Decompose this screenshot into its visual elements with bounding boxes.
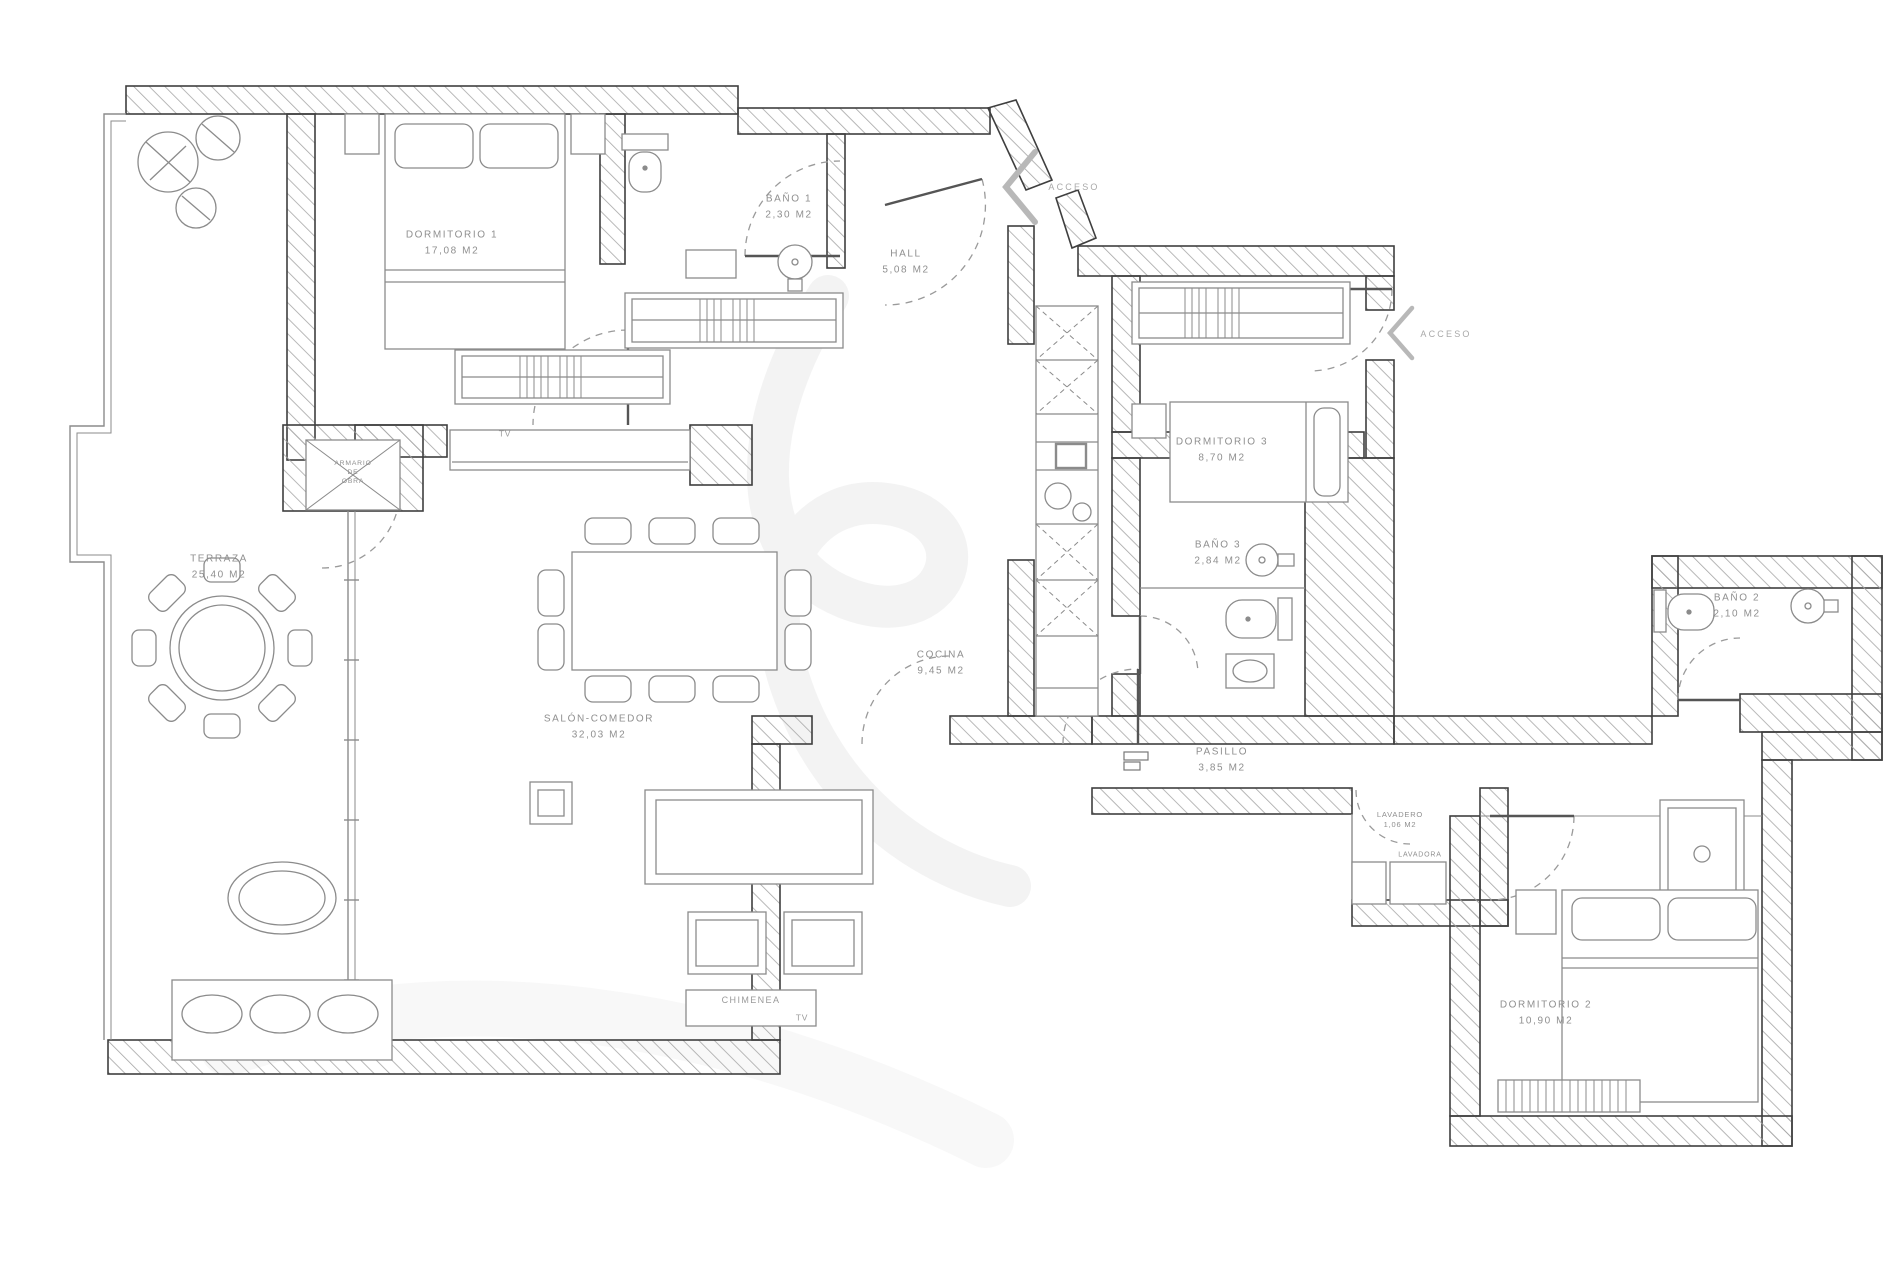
room-area: 5,08 M2 [882,263,929,277]
toilet-bath1 [622,134,668,192]
room-label-dormitorio-3: DORMITORIO 3 8,70 M2 [1176,436,1268,465]
kitchen-sink-icon [1045,483,1071,509]
room-area: 10,90 M2 [1519,1014,1574,1028]
label-tv-chimenea: TV [796,1012,808,1023]
entrance-door-arc [885,179,985,305]
room-name: ARMARIO [334,459,371,468]
washing-machine [1352,862,1446,904]
side-table [530,782,572,824]
coffee-table [645,790,873,884]
room-area: 32,03 M2 [572,728,627,742]
room-area: 2,10 M2 [1713,607,1760,621]
entrance-door-leaf [885,179,982,205]
room-label-lavadero: LAVADERO 1,06 M2 [1377,810,1423,830]
tv-shelf-niche [450,430,690,470]
room-name: HALL [890,248,921,262]
room-name: BAÑO 2 [1714,592,1760,606]
room-label-pasillo: PASILLO 3,85 M2 [1196,746,1248,775]
room-name: BAÑO 1 [766,193,812,207]
room-label-bano-3: BAÑO 3 2,84 M2 [1194,539,1241,568]
label-tv-salon: TV [499,428,511,439]
room-label-bano-2: BAÑO 2 2,10 M2 [1713,592,1760,621]
fixture-name: TV [499,428,511,439]
room-area: 1,06 M2 [1384,820,1417,830]
terrace-oval-table [228,862,336,934]
appliance-name: LAVADORA [1398,850,1442,859]
room-label-dormitorio-2: DORMITORIO 2 10,90 M2 [1500,999,1592,1028]
acceso2-chevron-icon [1390,308,1412,358]
bath2-door-arc [1678,638,1740,700]
entrance-name: ACCESO [1420,328,1471,340]
sink-bath1 [686,245,812,291]
label-chimenea: CHIMENEA [722,994,781,1006]
room-label-bano-1: BAÑO 1 2,30 M2 [765,193,812,222]
room-name: DORMITORIO 2 [1500,999,1592,1013]
fixture-name: TV [796,1012,808,1023]
bed-dormitorio2 [1516,890,1758,1102]
wardrobe-hall [625,293,843,348]
room-name: LAVADERO [1377,810,1423,820]
terrace-round-table [132,558,312,738]
label-lavadora: LAVADORA [1398,850,1442,859]
room-area: 2,30 M2 [765,208,812,222]
bath3-door-arc [1140,616,1198,674]
label-acceso-2: ACCESO [1420,328,1471,340]
radiator-dormitorio2 [1498,1080,1640,1112]
room-area: 9,45 M2 [917,664,964,678]
room-label-hall: HALL 5,08 M2 [882,248,929,277]
room-name: DE [347,468,358,477]
door-jamb-symbol [1124,752,1148,770]
plants [138,116,240,228]
floor-plan-drawing [0,0,1900,1266]
room-label-dormitorio-1: DORMITORIO 1 17,08 M2 [406,229,498,258]
fixture-name: CHIMENEA [722,994,781,1006]
entrance-name: ACCESO [1048,181,1099,193]
room-area: 3,85 M2 [1198,761,1245,775]
room-name: DORMITORIO 1 [406,229,498,243]
room-name: TERRAZA [190,553,248,567]
room-label-salon-comedor: SALÓN-COMEDOR 32,03 M2 [544,713,654,742]
wardrobe-dormitorio3 [1132,282,1350,344]
terrace-sofa [172,980,392,1060]
room-area: 8,70 M2 [1198,451,1245,465]
room-name: SALÓN-COMEDOR [544,713,654,727]
room-name: COCINA [917,649,966,663]
room-area: 2,84 M2 [1194,554,1241,568]
room-area: 25,40 M2 [192,568,247,582]
kitchen-counter [1036,306,1098,716]
furniture [132,114,1838,1112]
room-label-armario: ARMARIO DE OBRA [334,459,371,487]
room-name: OBRA [342,478,364,487]
room-label-cocina: COCINA 9,45 M2 [917,649,966,678]
oven-icon [1056,444,1086,468]
room-label-terraza: TERRAZA 25,40 M2 [190,553,248,582]
room-area: 17,08 M2 [425,244,480,258]
label-acceso-1: ACCESO [1048,181,1099,193]
room-name: BAÑO 3 [1195,539,1241,553]
room-name: DORMITORIO 3 [1176,436,1268,450]
floor-plan: DORMITORIO 1 17,08 M2 BAÑO 1 2,30 M2 HAL… [0,0,1900,1266]
wardrobe-dormitorio1 [455,350,670,404]
room-name: PASILLO [1196,746,1248,760]
